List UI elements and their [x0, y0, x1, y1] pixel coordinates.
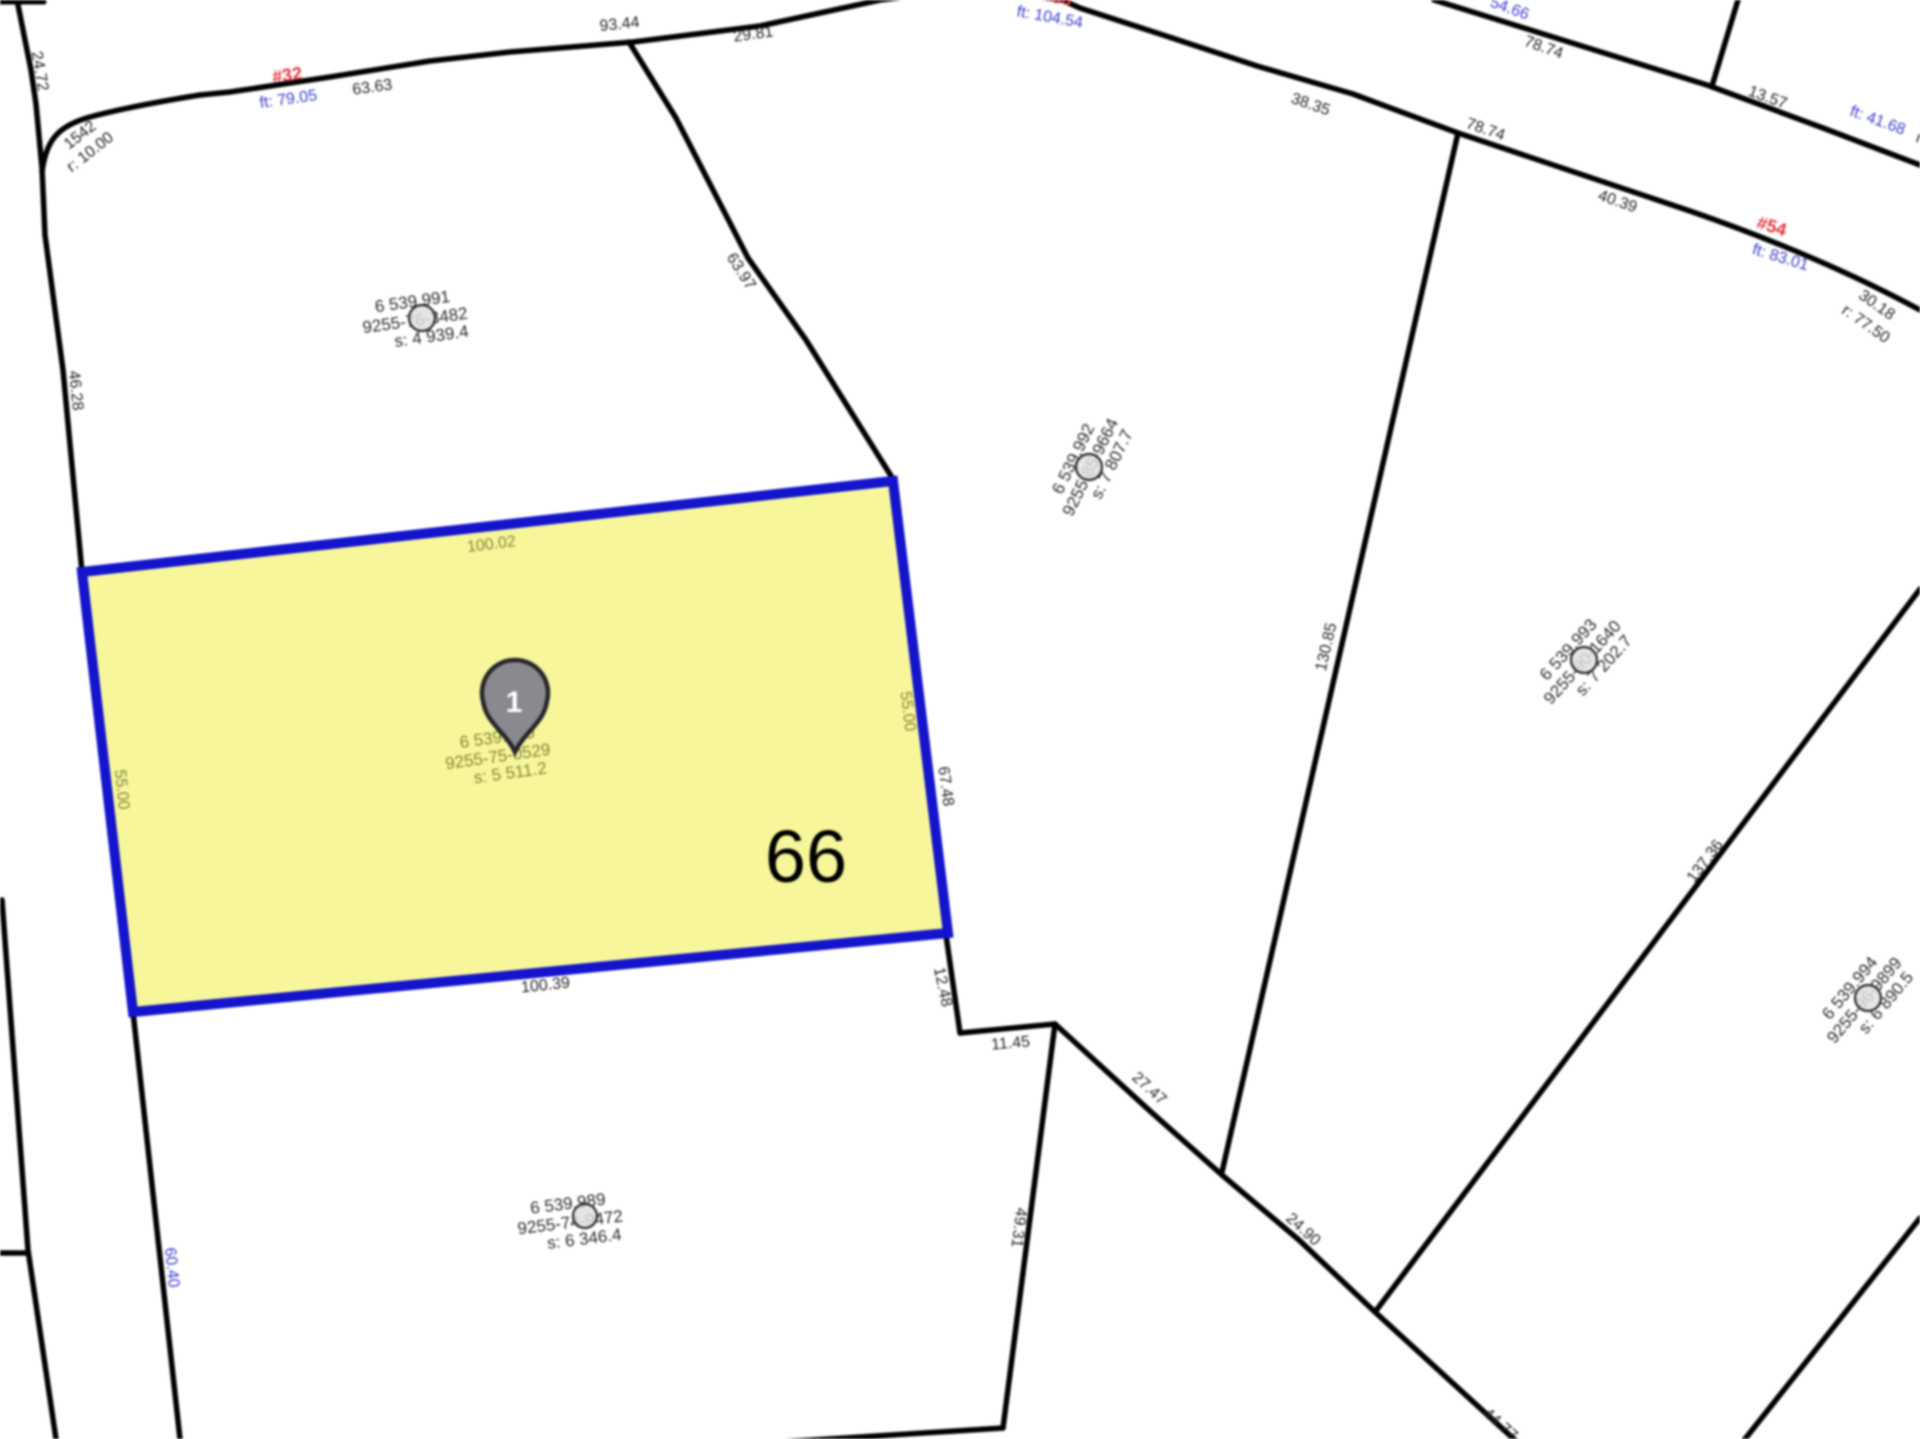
svg-text:11.45: 11.45	[991, 1033, 1031, 1053]
svg-text:66: 66	[765, 815, 847, 898]
svg-text:#32: #32	[271, 63, 304, 87]
svg-text:1: 1	[506, 686, 523, 719]
